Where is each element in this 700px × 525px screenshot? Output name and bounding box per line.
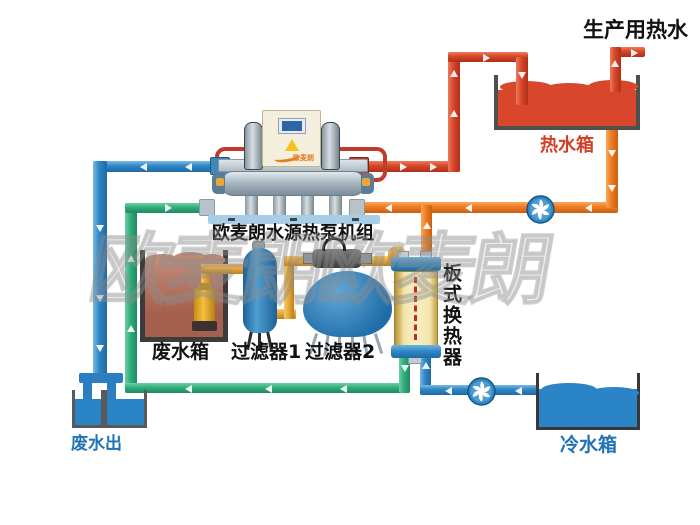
heat-pump-shell [221,171,365,196]
pipe-waste-discharge-riser [93,161,107,376]
control-display-screen [282,121,302,131]
schematic-diagram: 欧麦朗 生产用热水 热水箱 欧麦朗水源热泵机组 废水箱 过滤器1 过滤器2 板式… [0,0,700,525]
filter2-valve-port-left [303,253,313,264]
pipe-production-outlet-riser [610,47,621,92]
flow-arrow-left [140,163,147,171]
flow-arrow-up [423,222,431,229]
hx-top-header [391,257,441,271]
submersible-pump-body [194,288,215,324]
cold-water-pump-icon [467,377,496,406]
pipe-tank-inlet [516,57,528,105]
warning-triangle-icon [285,139,299,151]
plate-heat-exchanger-label: 板式换热器 [441,263,460,367]
flow-arrow-up [611,60,619,67]
heat-pump-leg [329,196,342,216]
flow-arrow-down [518,72,526,79]
filter2-valve-port-right [360,253,372,264]
flow-arrow-right [165,204,172,212]
flow-arrow-up [450,70,458,77]
flow-arrow-up [422,362,430,369]
flow-arrow-right [483,54,490,62]
pipe-filter1-riser [284,260,294,319]
hot-water-wave [544,83,594,95]
cold-water-wave [589,387,639,399]
flow-arrow-down [96,225,104,232]
flow-arrow-left [385,204,392,212]
heat-pump-leg [301,196,314,216]
waste-out-tank-right [104,390,147,428]
flow-arrow-down [96,345,104,352]
filter1-label: 过滤器1 [231,337,301,364]
filter1-vessel [243,248,277,333]
waste-out-tank-left [72,390,104,428]
cold-water-tank-label: 冷水箱 [560,430,617,457]
heat-pump-unit-label: 欧麦朗水源热泵机组 [212,219,374,245]
cold-water-tank [536,373,640,430]
flow-arrow-down [401,365,409,372]
flow-arrow-left [465,204,472,212]
heat-pump-leg [245,196,258,216]
flow-arrow-left [515,387,522,395]
flow-arrow-up [450,110,458,117]
submersible-pump-base [192,321,217,331]
production-hot-water-label: 生产用热水 [583,14,688,44]
waste-out-water-right [107,399,144,425]
hx-center-dashed-line [414,277,417,340]
flow-arrow-left [445,387,452,395]
shell-fitting-gold-left [216,178,224,186]
heat-pump-compressor-right [321,122,340,170]
flow-arrow-up [127,325,135,332]
flow-arrow-left [185,163,192,171]
flow-arrow-down [608,150,616,157]
flow-arrow-right [400,163,407,171]
flow-arrow-left [265,385,272,393]
waste-water-out-label: 废水出 [71,429,122,454]
heat-pump-fitting-orange-side [349,199,365,216]
cold-water-wave [541,383,597,397]
flow-arrow-left [340,385,347,393]
flow-arrow-right [631,49,638,57]
pipe-hot-return-horizontal [353,202,618,213]
hx-bottom-flange [408,357,422,364]
filter2-label: 过滤器2 [305,337,375,364]
hx-bottom-header [391,345,441,358]
hot-loop-pump-icon [526,195,555,224]
pipe-source-supply-riser [125,203,137,393]
flow-arrow-down [608,185,616,192]
flow-arrow-left [185,385,192,393]
flow-arrow-up [127,255,135,262]
waste-out-water-left [75,399,101,425]
submersible-pump-cap [198,283,211,290]
pipe-hot-return-riser [606,128,618,208]
flow-arrow-left [585,204,592,212]
pipe-waste-discharge-horizontal [93,161,218,172]
hot-water-tank-label: 热水箱 [540,131,594,157]
heat-pump-leg [273,196,286,216]
heat-pump-fitting-green-side [199,199,215,216]
shell-fitting-gold-right [362,178,370,186]
waste-water-tank-label: 废水箱 [152,337,209,364]
flow-arrow-right [430,163,437,171]
brand-logo-text: 欧麦朗 [293,153,314,163]
flow-arrow-down [96,295,104,302]
filter2-valve-body [312,249,362,268]
filter2-vessel [303,271,392,337]
heat-pump-compressor-left [244,122,263,170]
